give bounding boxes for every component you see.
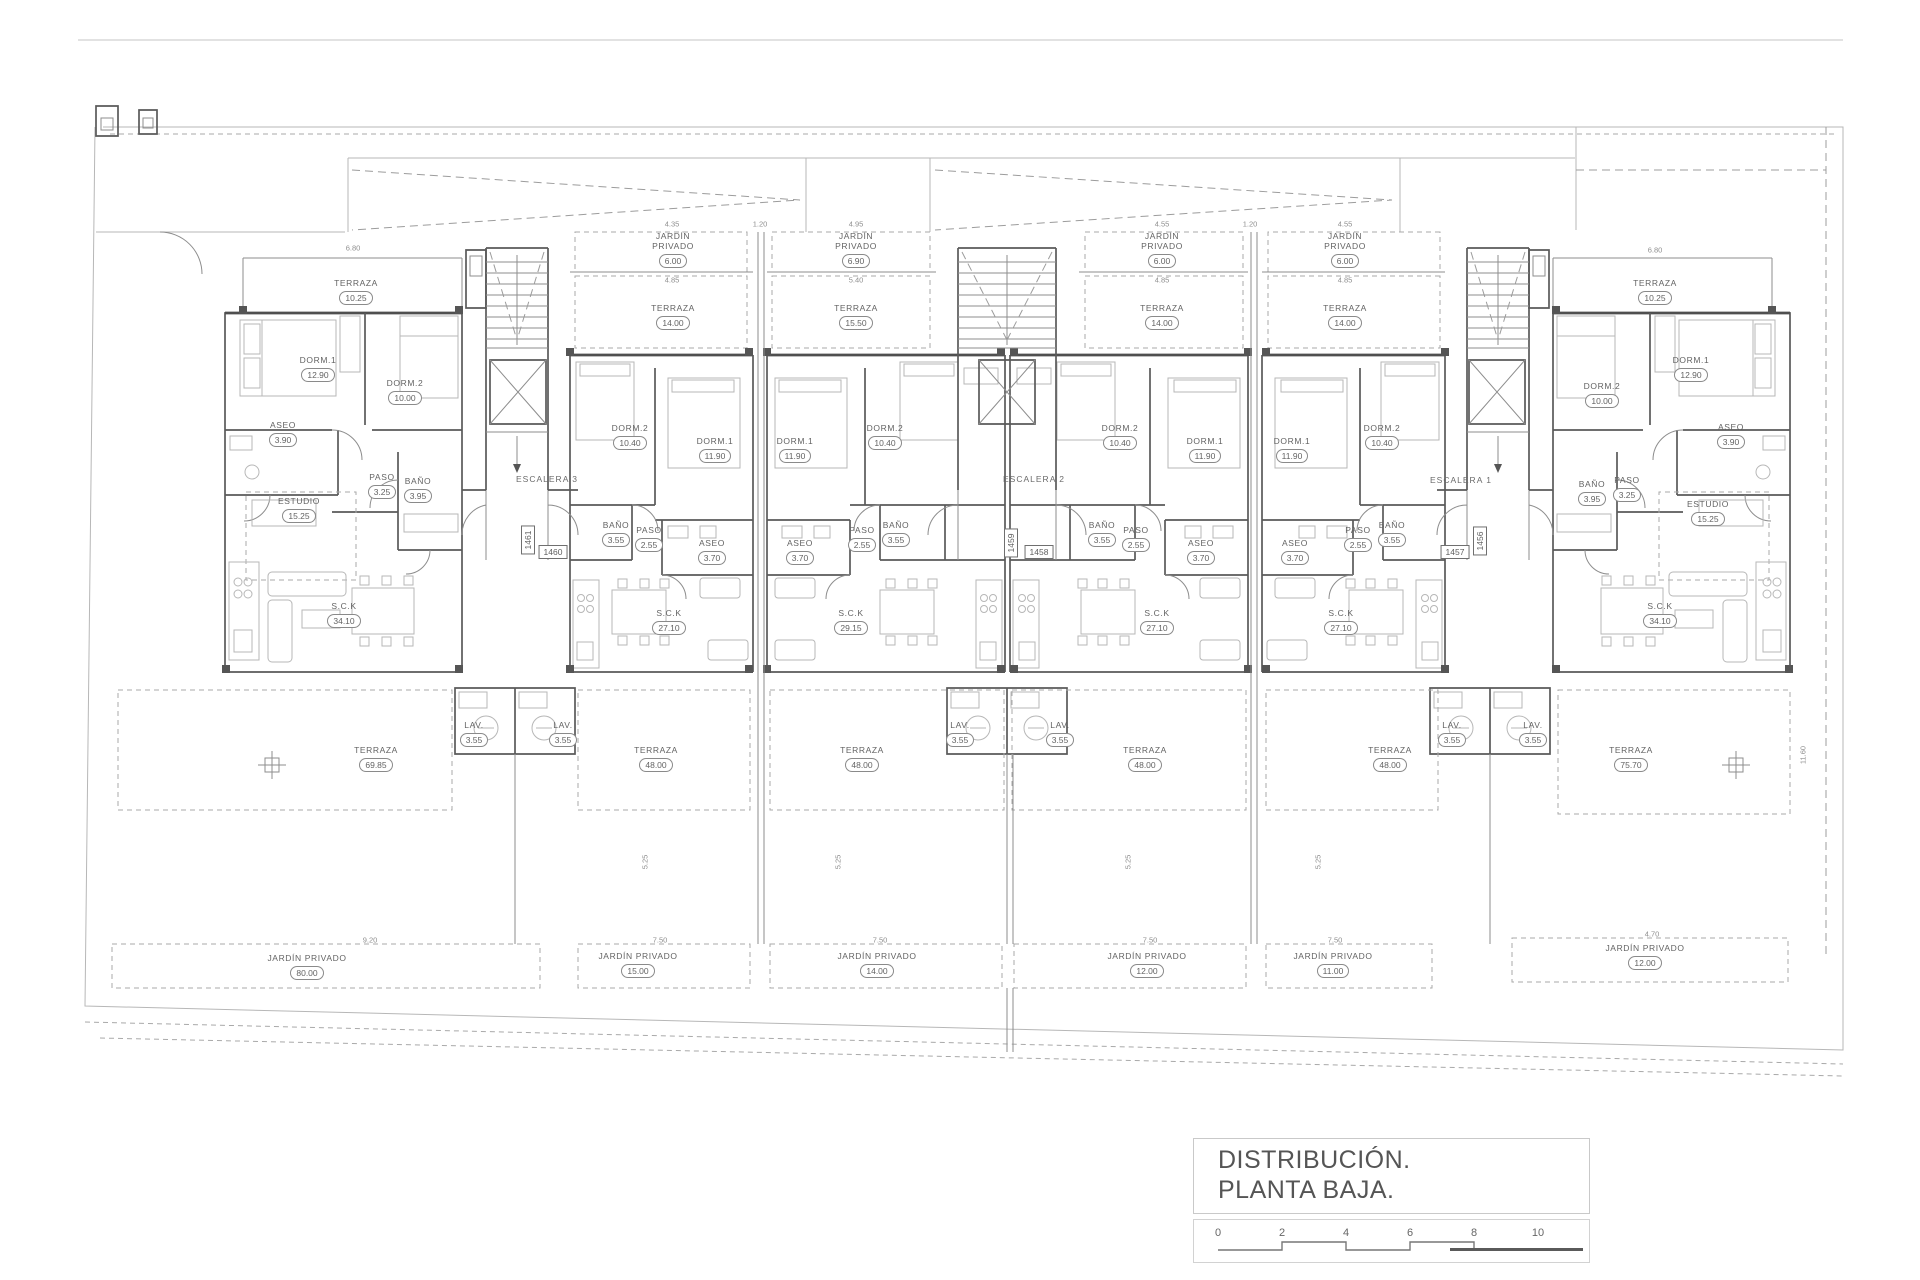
dimension-label: 5.40	[849, 276, 864, 285]
room-area-badge: 10.40	[613, 436, 646, 450]
dimension-label: 5.25	[1314, 855, 1323, 870]
dimension-label: 4.55	[1155, 220, 1170, 229]
room-label: DORM.210.00	[345, 378, 465, 406]
drawing-title-line2: PLANTA BAJA.	[1218, 1175, 1589, 1205]
room-name: TERRAZA	[596, 745, 716, 755]
dimension-label: 4.70	[1645, 930, 1660, 939]
room-name: JARDÍN PRIVADO	[641, 231, 705, 251]
room-area-badge: 11.90	[699, 449, 732, 463]
room-name: JARDÍN PRIVADO	[578, 951, 698, 961]
room-label: ESTUDIO15.25	[1648, 499, 1768, 527]
room-label: TERRAZA15.50	[796, 303, 916, 331]
room-name: S.C.K	[609, 608, 729, 618]
room-area-badge: 27.10	[652, 621, 685, 635]
scale-bar: 0246810	[1193, 1219, 1590, 1263]
room-name: JARDÍN PRIVADO	[1313, 231, 1377, 251]
dimension-label: 1.20	[753, 220, 768, 229]
room-label: JARDÍN PRIVADO6.00	[613, 231, 733, 269]
room-label: TERRAZA14.00	[1285, 303, 1405, 331]
dimension-label: 4.85	[1338, 276, 1353, 285]
room-name: TERRAZA	[296, 278, 416, 288]
room-area-badge: 14.00	[860, 964, 893, 978]
room-name: S.C.K	[791, 608, 911, 618]
unit-number: 1456	[1473, 527, 1487, 556]
room-area-badge: 12.00	[1130, 964, 1163, 978]
room-area-badge: 15.00	[621, 964, 654, 978]
room-name: TERRAZA	[1595, 278, 1715, 288]
room-area-badge: 11.90	[779, 449, 812, 463]
room-name: S.C.K	[284, 601, 404, 611]
room-area-badge: 12.00	[1628, 956, 1661, 970]
stairwell-label: ESCALERA 3	[516, 474, 578, 484]
room-area-badge: 48.00	[845, 758, 878, 772]
room-name: BAÑO	[358, 476, 478, 486]
room-area-badge: 3.70	[1281, 551, 1310, 565]
room-area-badge: 10.40	[868, 436, 901, 450]
room-label: S.C.K27.10	[609, 608, 729, 636]
room-area-badge: 48.00	[639, 758, 672, 772]
room-label: DORM.210.00	[1542, 381, 1662, 409]
unit-number: 1460	[539, 545, 568, 559]
room-area-badge: 3.95	[404, 489, 433, 503]
room-name: JARDÍN PRIVADO	[817, 951, 937, 961]
room-area-badge: 48.00	[1128, 758, 1161, 772]
room-area-badge: 3.55	[882, 533, 911, 547]
floor-plan-page: TERRAZA10.25DORM.112.90DORM.210.00ASEO3.…	[0, 0, 1920, 1280]
scale-tick: 4	[1343, 1227, 1349, 1239]
unit-number: 1461	[521, 526, 535, 555]
room-area-badge: 3.70	[1187, 551, 1216, 565]
room-label: LAV.3.55	[1000, 720, 1120, 748]
room-area-badge: 14.00	[1328, 316, 1361, 330]
room-area-badge: 14.00	[656, 316, 689, 330]
room-area-badge: 3.55	[946, 733, 975, 747]
room-label: DORM.112.90	[1631, 355, 1751, 383]
room-label: LAV.3.55	[503, 720, 623, 748]
room-label: BAÑO3.95	[1532, 479, 1652, 507]
room-label: BAÑO3.55	[1332, 520, 1452, 548]
room-name: JARDÍN PRIVADO	[1087, 951, 1207, 961]
room-area-badge: 10.00	[1585, 394, 1618, 408]
room-label: JARDÍN PRIVADO6.90	[796, 231, 916, 269]
room-name: DORM.1	[1631, 355, 1751, 365]
dimension-label: 7.50	[1328, 936, 1343, 945]
room-area-badge: 48.00	[1373, 758, 1406, 772]
room-label: JARDÍN PRIVADO11.00	[1273, 951, 1393, 979]
room-area-badge: 34.10	[327, 614, 360, 628]
unit-number: 1457	[1441, 545, 1470, 559]
room-name: BAÑO	[836, 520, 956, 530]
room-area-badge: 6.00	[1148, 254, 1177, 268]
room-name: ESTUDIO	[1648, 499, 1768, 509]
room-label: LAV.3.55	[1473, 720, 1593, 748]
scale-tick: 6	[1407, 1227, 1413, 1239]
scale-underline	[1450, 1248, 1583, 1251]
unit-number: 1458	[1025, 545, 1054, 559]
room-label: TERRAZA69.85	[316, 745, 436, 773]
room-label: JARDÍN PRIVADO14.00	[817, 951, 937, 979]
room-label: TERRAZA48.00	[596, 745, 716, 773]
dimension-label: 5.25	[1124, 855, 1133, 870]
room-name: DORM.2	[825, 423, 945, 433]
room-label: ASEO3.90	[223, 420, 343, 448]
room-area-badge: 11.90	[1276, 449, 1309, 463]
room-area-badge: 3.55	[1519, 733, 1548, 747]
stairwell-label: ESCALERA 2	[1003, 474, 1065, 484]
dimension-label: 4.35	[665, 220, 680, 229]
room-name: BAÑO	[1332, 520, 1452, 530]
dimension-label: 4.55	[1338, 220, 1353, 229]
title-block: DISTRIBUCIÓN. PLANTA BAJA. 0246810	[1193, 1138, 1590, 1263]
room-label: BAÑO3.95	[358, 476, 478, 504]
dimension-label: 7.50	[1143, 936, 1158, 945]
room-area-badge: 10.00	[388, 391, 421, 405]
room-label: TERRAZA10.25	[1595, 278, 1715, 306]
unit-number: 1459	[1004, 529, 1018, 558]
room-name: LAV.	[1000, 720, 1120, 730]
room-label: S.C.K27.10	[1097, 608, 1217, 636]
room-area-badge: 10.40	[1365, 436, 1398, 450]
room-area-badge: 3.70	[786, 551, 815, 565]
dimension-label: 4.95	[849, 220, 864, 229]
room-area-badge: 27.10	[1324, 621, 1357, 635]
dimension-label: 5.25	[834, 855, 843, 870]
dimension-label: 9.20	[363, 936, 378, 945]
room-label: S.C.K29.15	[791, 608, 911, 636]
room-area-badge: 3.90	[269, 433, 298, 447]
room-name: DORM.2	[345, 378, 465, 388]
room-area-badge: 10.25	[1638, 291, 1671, 305]
room-area-badge: 34.10	[1643, 614, 1676, 628]
room-label: JARDÍN PRIVADO6.00	[1102, 231, 1222, 269]
room-area-badge: 6.00	[659, 254, 688, 268]
dimension-label: 6.80	[1648, 246, 1663, 255]
room-area-badge: 15.25	[282, 509, 315, 523]
room-label: ASEO3.90	[1671, 422, 1791, 450]
room-name: ESTUDIO	[239, 496, 359, 506]
dimension-label: 5.25	[641, 855, 650, 870]
room-area-badge: 10.40	[1103, 436, 1136, 450]
room-name: TERRAZA	[1571, 745, 1691, 755]
room-name: S.C.K	[1281, 608, 1401, 618]
room-label: BAÑO3.55	[836, 520, 956, 548]
room-label: JARDÍN PRIVADO12.00	[1087, 951, 1207, 979]
room-area-badge: 69.85	[359, 758, 392, 772]
room-area-badge: 12.90	[301, 368, 334, 382]
room-area-badge: 3.55	[549, 733, 578, 747]
room-name: TERRAZA	[613, 303, 733, 313]
room-area-badge: 3.90	[1717, 435, 1746, 449]
room-name: ASEO	[223, 420, 343, 430]
room-name: PASO	[589, 525, 709, 535]
room-label: TERRAZA48.00	[1085, 745, 1205, 773]
room-name: TERRAZA	[796, 303, 916, 313]
room-name: LAV.	[1473, 720, 1593, 730]
room-area-badge: 15.50	[839, 316, 872, 330]
room-label: JARDÍN PRIVADO15.00	[578, 951, 698, 979]
room-name: DORM.2	[570, 423, 690, 433]
floor-plan-drawing	[0, 0, 1920, 1280]
room-label: TERRAZA48.00	[802, 745, 922, 773]
room-area-badge: 14.00	[1145, 316, 1178, 330]
room-label: TERRAZA14.00	[613, 303, 733, 331]
room-name: JARDÍN PRIVADO	[1130, 231, 1194, 251]
room-label: JARDÍN PRIVADO12.00	[1585, 943, 1705, 971]
room-name: TERRAZA	[802, 745, 922, 755]
room-name: DORM.1	[258, 355, 378, 365]
room-name: S.C.K	[1600, 601, 1720, 611]
dimension-label: 11.60	[1799, 746, 1808, 764]
room-label: DORM.210.40	[825, 423, 945, 451]
room-name: TERRAZA	[1330, 745, 1450, 755]
room-label: S.C.K34.10	[1600, 601, 1720, 629]
scale-tick: 2	[1279, 1227, 1285, 1239]
room-area-badge: 3.55	[1378, 533, 1407, 547]
room-name: TERRAZA	[1285, 303, 1405, 313]
scale-tick: 10	[1532, 1227, 1544, 1239]
room-label: S.C.K27.10	[1281, 608, 1401, 636]
room-name: JARDÍN PRIVADO	[824, 231, 888, 251]
room-name: JARDÍN PRIVADO	[247, 953, 367, 963]
room-name: JARDÍN PRIVADO	[1585, 943, 1705, 953]
room-area-badge: 6.90	[842, 254, 871, 268]
room-name: ASEO	[1671, 422, 1791, 432]
room-area-badge: 10.25	[339, 291, 372, 305]
room-area-badge: 15.25	[1691, 512, 1724, 526]
room-area-badge: 80.00	[290, 966, 323, 980]
room-name: DORM.2	[1322, 423, 1442, 433]
stairwell-label: ESCALERA 1	[1430, 475, 1492, 485]
room-label: TERRAZA48.00	[1330, 745, 1450, 773]
room-area-badge: 11.00	[1317, 964, 1350, 978]
room-area-badge: 27.10	[1140, 621, 1173, 635]
room-area-badge: 12.90	[1674, 368, 1707, 382]
dimension-label: 4.85	[1155, 276, 1170, 285]
room-label: JARDÍN PRIVADO6.00	[1285, 231, 1405, 269]
room-area-badge: 3.55	[1046, 733, 1075, 747]
drawing-title: DISTRIBUCIÓN. PLANTA BAJA.	[1193, 1138, 1590, 1214]
room-name: PASO	[1076, 525, 1196, 535]
room-label: TERRAZA75.70	[1571, 745, 1691, 773]
room-name: JARDÍN PRIVADO	[1273, 951, 1393, 961]
room-label: DORM.210.40	[1322, 423, 1442, 451]
room-label: ESTUDIO15.25	[239, 496, 359, 524]
scale-bar-steps	[1194, 1220, 1589, 1262]
dimension-label: 4.85	[665, 276, 680, 285]
room-label: TERRAZA14.00	[1102, 303, 1222, 331]
room-area-badge: 3.95	[1578, 492, 1607, 506]
room-area-badge: 11.90	[1189, 449, 1222, 463]
dimension-label: 6.80	[346, 244, 361, 253]
room-name: TERRAZA	[1085, 745, 1205, 755]
room-name: S.C.K	[1097, 608, 1217, 618]
room-area-badge: 3.55	[460, 733, 489, 747]
room-label: JARDÍN PRIVADO80.00	[247, 953, 367, 981]
room-name: BAÑO	[1532, 479, 1652, 489]
scale-tick: 8	[1471, 1227, 1477, 1239]
drawing-title-line1: DISTRIBUCIÓN.	[1218, 1145, 1589, 1175]
scale-tick: 0	[1215, 1227, 1221, 1239]
room-area-badge: 3.70	[698, 551, 727, 565]
room-name: TERRAZA	[1102, 303, 1222, 313]
room-area-badge: 29.15	[834, 621, 867, 635]
room-name: DORM.2	[1060, 423, 1180, 433]
room-label: TERRAZA10.25	[296, 278, 416, 306]
room-area-badge: 75.70	[1614, 758, 1647, 772]
dimension-label: 1.20	[1243, 220, 1258, 229]
dimension-label: 7.50	[653, 936, 668, 945]
room-name: LAV.	[503, 720, 623, 730]
room-area-badge: 6.00	[1331, 254, 1360, 268]
room-name: TERRAZA	[316, 745, 436, 755]
dimension-label: 7.50	[873, 936, 888, 945]
room-label: S.C.K34.10	[284, 601, 404, 629]
